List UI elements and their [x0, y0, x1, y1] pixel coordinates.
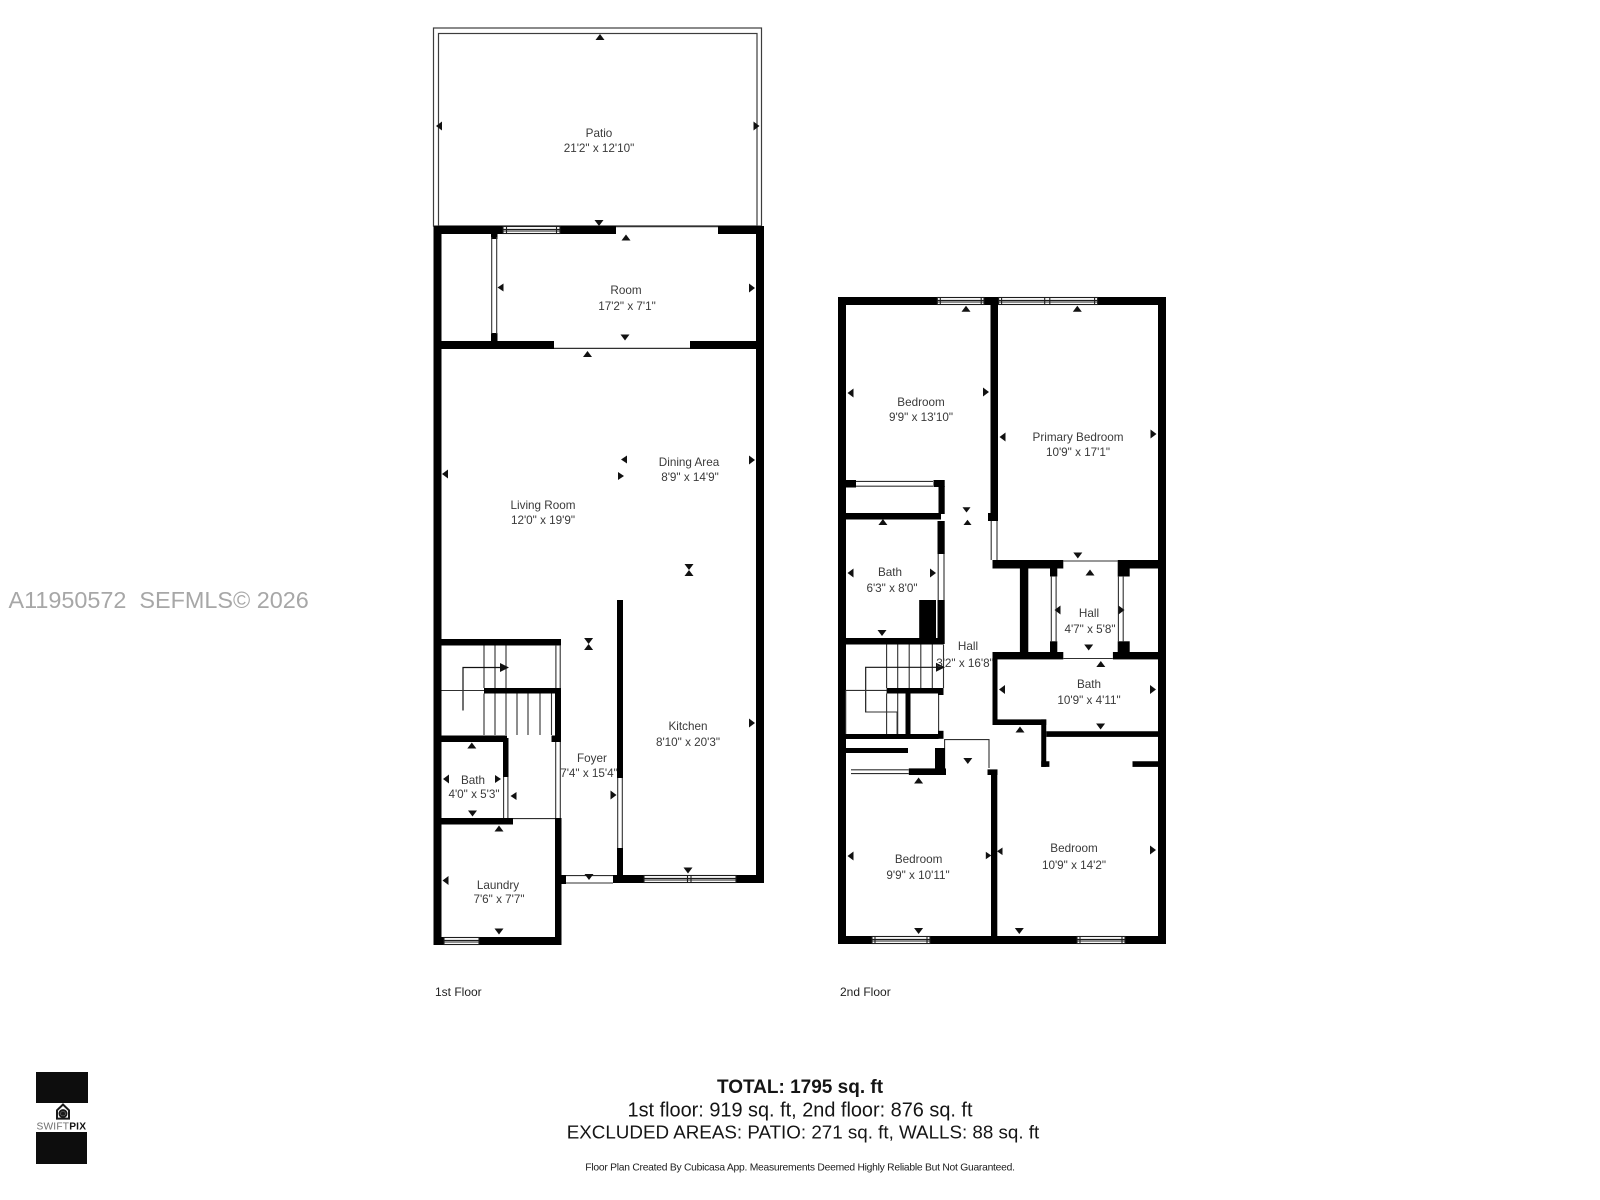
svg-text:10'9" x 17'1": 10'9" x 17'1": [1046, 446, 1110, 459]
svg-text:Hall: Hall: [958, 640, 978, 653]
svg-text:Bedroom: Bedroom: [897, 396, 944, 409]
svg-text:Foyer: Foyer: [577, 752, 607, 765]
svg-text:Primary Bedroom: Primary Bedroom: [1033, 431, 1124, 444]
svg-text:8'9" x 14'9": 8'9" x 14'9": [661, 471, 719, 484]
svg-text:7'6" x 7'7": 7'6" x 7'7": [473, 893, 524, 906]
svg-text:A11950572 SEFMLS© 2026: A11950572 SEFMLS© 2026: [9, 587, 309, 613]
svg-text:9'9" x 10'11": 9'9" x 10'11": [886, 869, 949, 882]
svg-text:2nd Floor: 2nd Floor: [840, 985, 891, 999]
svg-text:EXCLUDED AREAS: PATIO: 271 sq.: EXCLUDED AREAS: PATIO: 271 sq. ft, WALLS…: [567, 1122, 1040, 1143]
svg-text:21'2" x 12'10": 21'2" x 12'10": [564, 142, 635, 155]
svg-text:Laundry: Laundry: [477, 879, 519, 892]
svg-text:8'10" x 20'3": 8'10" x 20'3": [656, 736, 720, 749]
svg-text:Bedroom: Bedroom: [1050, 842, 1097, 855]
svg-text:1st floor: 919 sq. ft, 2nd flo: 1st floor: 919 sq. ft, 2nd floor: 876 sq…: [628, 1100, 973, 1122]
svg-text:12'0" x 19'9": 12'0" x 19'9": [511, 514, 575, 527]
svg-text:17'2" x 7'1": 17'2" x 7'1": [598, 300, 656, 313]
svg-text:10'9" x 4'11": 10'9" x 4'11": [1057, 694, 1120, 707]
svg-text:Bath: Bath: [1077, 678, 1101, 691]
svg-text:Patio: Patio: [586, 127, 613, 140]
svg-text:4'7" x 5'8": 4'7" x 5'8": [1064, 623, 1115, 636]
svg-text:1st Floor: 1st Floor: [435, 985, 482, 999]
svg-text:4'0" x 5'3": 4'0" x 5'3": [448, 788, 499, 801]
svg-text:3'2" x 16'8": 3'2" x 16'8": [936, 657, 994, 670]
svg-text:Living Room: Living Room: [511, 499, 576, 512]
svg-text:Bath: Bath: [878, 566, 902, 579]
svg-text:10'9" x 14'2": 10'9" x 14'2": [1042, 859, 1106, 872]
svg-text:SWIFTPIX: SWIFTPIX: [37, 1121, 87, 1132]
svg-text:Dining Area: Dining Area: [659, 456, 720, 469]
svg-text:6'3" x 8'0": 6'3" x 8'0": [866, 582, 917, 595]
svg-text:Bath: Bath: [461, 774, 485, 787]
svg-text:TOTAL: 1795 sq. ft: TOTAL: 1795 sq. ft: [717, 1077, 884, 1098]
svg-text:7'4" x 15'4": 7'4" x 15'4": [560, 767, 618, 780]
svg-text:Room: Room: [610, 284, 641, 297]
svg-text:Floor Plan Created By Cubicasa: Floor Plan Created By Cubicasa App. Meas…: [585, 1163, 1014, 1174]
svg-text:Hall: Hall: [1079, 607, 1099, 620]
svg-text:Kitchen: Kitchen: [669, 720, 708, 733]
svg-text:Bedroom: Bedroom: [895, 853, 942, 866]
svg-text:9'9" x 13'10": 9'9" x 13'10": [889, 411, 953, 424]
